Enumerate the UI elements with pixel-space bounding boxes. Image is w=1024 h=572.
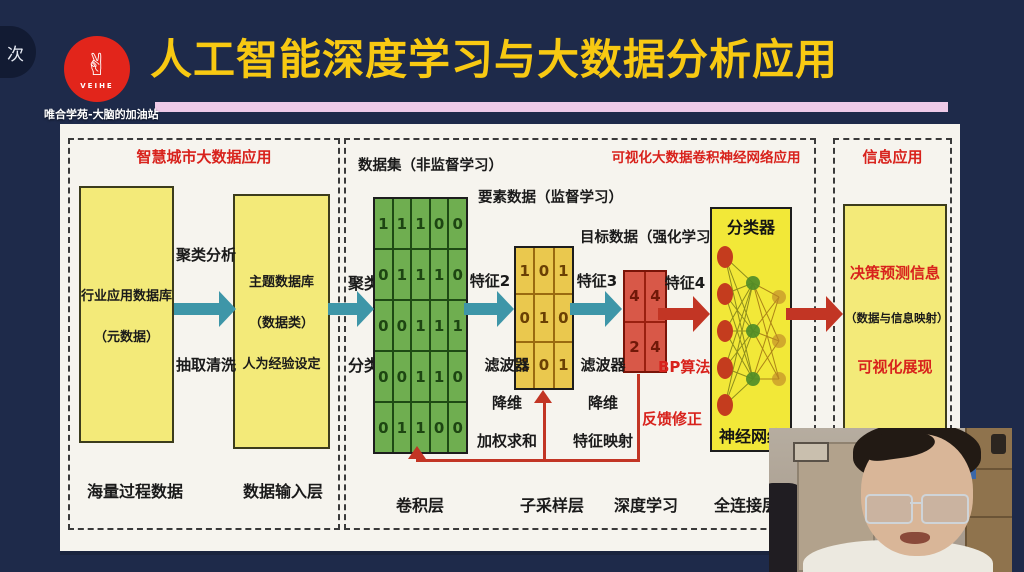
feedback-line-vertical xyxy=(637,374,640,462)
title-underline-bar xyxy=(155,102,948,112)
matrix-cell: 0 xyxy=(375,403,392,452)
matrix-cell: 1 xyxy=(412,301,429,350)
feedback-line-subsample xyxy=(543,402,546,460)
dataset-matrix: 1110001110001110011001100 xyxy=(373,197,468,454)
extract-clean-label: 抽取清洗 xyxy=(174,354,238,375)
slide-main-title: 人工智能深度学习与大数据分析应用 xyxy=(150,26,838,87)
matrix-cell: 0 xyxy=(535,248,552,293)
matrix-cell: 0 xyxy=(431,199,448,248)
matrix-cell: 1 xyxy=(412,250,429,299)
glasses-right-lens xyxy=(921,494,969,524)
presenter-webcam-video[interactable] xyxy=(769,428,1012,572)
matrix-cell: 0 xyxy=(431,403,448,452)
matrix-cell: 1 xyxy=(431,250,448,299)
filter1-label: 滤波器降维加权求和 xyxy=(464,346,550,460)
caption-conv-layer: 卷积层 xyxy=(388,492,452,516)
matrix-cell: 0 xyxy=(516,295,533,340)
feedback-correct-label: 反馈修正 xyxy=(642,408,702,429)
matrix-cell: 1 xyxy=(375,199,392,248)
decision-info-line1: 决策预测信息 xyxy=(845,262,945,283)
glasses-bridge xyxy=(910,502,922,504)
matrix-cell: 1 xyxy=(535,295,552,340)
matrix-cell: 0 xyxy=(449,199,466,248)
caption-subsample-layer: 子采样层 xyxy=(514,492,590,516)
viewer-count-tab[interactable]: 次 xyxy=(0,26,36,78)
matrix-cell: 1 xyxy=(394,250,411,299)
picture-frame xyxy=(793,442,829,462)
livestream-screen: 次 ✌ VEIHE 人工智能深度学习与大数据分析应用 唯合学苑-大脑的加油站 智… xyxy=(0,0,1024,572)
dataset-label: 数据集（非监督学习） xyxy=(358,154,503,175)
channel-watermark: 唯合学苑-大脑的加油站 xyxy=(44,106,159,122)
feedback-arrowhead-conv xyxy=(408,446,426,459)
feature3-label: 特征3 xyxy=(572,270,622,291)
feature4-label: 特征4 xyxy=(660,272,710,293)
decision-info-line2: （数据与信息映射） xyxy=(845,310,945,326)
glasses-left-lens xyxy=(865,494,913,524)
theme-db-line1: 主题数据库 xyxy=(249,271,314,290)
arrow-feature3 xyxy=(570,291,622,327)
section-cnn: 可视化大数据卷积神经网络应用 数据集（非监督学习） 要素数据（监督学习） 目标数… xyxy=(344,138,816,530)
theme-db-line3: 人为经验设定 xyxy=(242,353,320,372)
veihe-logo: ✌ VEIHE xyxy=(64,36,130,102)
caption-data-input-layer: 数据输入层 xyxy=(238,478,328,502)
bp-algorithm-label: BP算法 xyxy=(658,356,710,377)
industry-db-line2: （元数据） xyxy=(94,326,159,345)
theme-db-box: 主题数据库 （数据类） 人为经验设定 xyxy=(233,194,330,449)
matrix-cell: 0 xyxy=(375,250,392,299)
logo-brand-text: VEIHE xyxy=(80,82,113,90)
matrix-cell: 0 xyxy=(375,352,392,401)
victory-hand-icon: ✌ xyxy=(84,51,109,81)
matrix-cell: 1 xyxy=(394,199,411,248)
classifier-box: 分类器 xyxy=(710,207,792,452)
matrix-cell: 1 xyxy=(412,403,429,452)
feature2-label: 特征2 xyxy=(466,270,514,291)
element-data-label: 要素数据（监督学习） xyxy=(478,186,623,207)
matrix-cell: 4 xyxy=(625,272,644,321)
matrix-cell: 1 xyxy=(431,352,448,401)
matrix-cell: 1 xyxy=(431,301,448,350)
decision-info-line3: 可视化展现 xyxy=(845,356,945,377)
theme-db-line2: （数据类） xyxy=(249,312,314,331)
viewer-count-label: 次 xyxy=(7,40,24,65)
industry-db-box: 行业应用数据库 （元数据） xyxy=(79,186,174,443)
matrix-cell: 0 xyxy=(375,301,392,350)
industry-db-line1: 行业应用数据库 xyxy=(81,285,172,304)
cluster-analysis-label: 聚类分析 xyxy=(174,244,238,265)
filter2-label: 滤波器降维特征映射 xyxy=(560,346,646,460)
arrow-feature4 xyxy=(658,296,710,332)
section-smart-city-title: 智慧城市大数据应用 xyxy=(70,146,338,167)
arrow-to-info xyxy=(786,296,843,332)
caption-mass-process-data: 海量过程数据 xyxy=(75,478,195,502)
presenter-mouth xyxy=(900,532,930,544)
feedback-line-horizontal xyxy=(416,459,640,462)
caption-deep-learning: 深度学习 xyxy=(608,492,684,516)
section-info-title: 信息应用 xyxy=(835,146,950,167)
matrix-cell: 1 xyxy=(394,403,411,452)
arrow-feature2 xyxy=(464,291,514,327)
matrix-cell: 1 xyxy=(412,199,429,248)
matrix-cell: 0 xyxy=(394,352,411,401)
neural-network-icon xyxy=(715,239,789,425)
feedback-arrowhead-subsample xyxy=(534,390,552,403)
matrix-cell: 0 xyxy=(394,301,411,350)
matrix-cell: 1 xyxy=(412,352,429,401)
section-smart-city: 智慧城市大数据应用 行业应用数据库 （元数据） 主题数据库 （数据类） 人为经验… xyxy=(68,138,340,530)
matrix-cell: 1 xyxy=(555,248,572,293)
section-cnn-title: 可视化大数据卷积神经网络应用 xyxy=(602,146,810,166)
target-data-label: 目标数据（强化学习） xyxy=(580,226,725,247)
arrow-into-dataset-matrix xyxy=(328,291,374,327)
shelf-item-dark xyxy=(991,434,1006,454)
arrow-cluster-analysis xyxy=(174,291,236,327)
matrix-cell: 1 xyxy=(516,248,533,293)
classifier-title: 分类器 xyxy=(712,214,790,238)
